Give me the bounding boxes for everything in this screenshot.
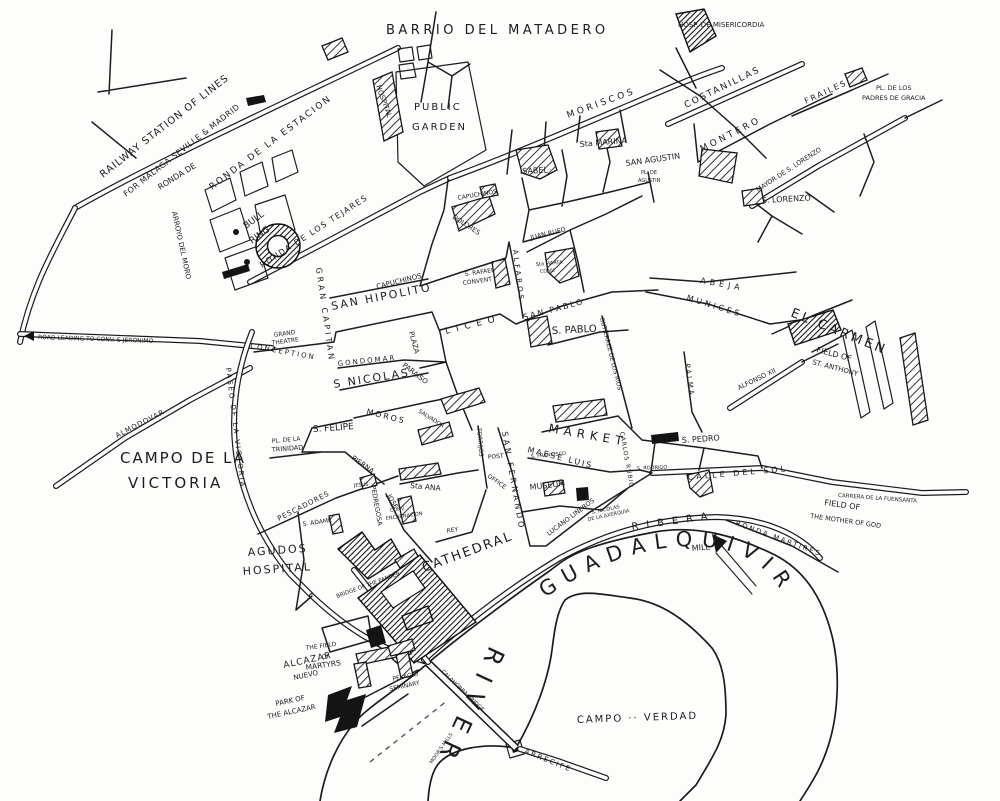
label-mother-2: THE MOTHER OF GOD (809, 512, 882, 530)
s-pedro-block (651, 432, 679, 444)
misericordia-block (676, 9, 716, 52)
label-trinidad-2: TRINIDAD (270, 443, 303, 454)
label-s-adame: S. ADAME (302, 517, 332, 528)
agudos-hospital-block (338, 532, 402, 579)
label-agudos-1: AGUDOS (247, 542, 308, 559)
label-post-1: POST (488, 453, 505, 461)
city-map: BARRIO DEL MATADERO RAILWAY STATION OF L… (0, 0, 1000, 801)
label-public-garden-2: GARDEN (412, 122, 467, 133)
label-rey: REY (446, 526, 459, 535)
label-market: MARKET (547, 421, 628, 449)
label-misericordia: HOSP. DE MISERICORDIA (678, 21, 764, 29)
label-palma: PALMA (683, 363, 696, 397)
label-liceo: LICEO (444, 313, 501, 336)
market-block (553, 399, 607, 422)
label-post-2: OFFICE (486, 473, 508, 491)
label-park-2: THE ALCAZAR (266, 703, 317, 721)
label-sta-ana: Sta ANA (410, 481, 442, 493)
label-cathedral: CATHEDRAL (420, 529, 515, 576)
label-munices: MUNICES (685, 293, 743, 319)
label-pl-agustin-2: AGUSTIN (638, 178, 661, 184)
label-campo-victoria-2: VICTORIA (128, 474, 223, 492)
label-san-agustin: SAN AGUSTIN (625, 151, 681, 168)
label-pl-agustin-1: PL. DE (641, 170, 657, 176)
label-alfaros: ALFAROS (511, 249, 525, 302)
label-almodovar: ALMODOVAR (114, 408, 166, 440)
label-montero: MONTERO (699, 115, 763, 154)
label-moros: MOROS (366, 407, 407, 425)
alcazar-nuevo-block (325, 686, 366, 733)
label-campo-victoria-1: CAMPO DE LA (120, 449, 246, 467)
san-agustin-block (699, 149, 737, 183)
label-s-pedro: S. PEDRO (682, 433, 721, 445)
label-isabel: ISABEL (520, 166, 549, 176)
label-public-garden-1: PUBLIC (414, 102, 462, 113)
label-padres-1: PL. DE LOS (876, 84, 911, 92)
label-barrio-matadero: BARRIO DEL MATADERO (386, 23, 609, 38)
anthony-strip-2 (866, 321, 893, 409)
label-guadalquivir: GUADALQUIVIR (535, 527, 801, 602)
label-s-pablo: S. PABLO (552, 324, 598, 337)
river-bank-inner-loop (516, 593, 726, 801)
label-san-fernando: SAN FERNANDO (500, 431, 526, 531)
label-anthony-2: ST. ANTHONY (811, 358, 859, 378)
label-gondomar: GONDOMAR (337, 354, 396, 368)
label-gutierrez: GUTIERREZ DE LOS RIOS (598, 317, 623, 391)
label-s-felipe: S. FELIPE (313, 422, 355, 435)
label-carlos-rubio: CARLOS RUBIO (618, 431, 635, 489)
s-pablo-block (527, 316, 552, 347)
label-s-nicolas: S NICOLAS (332, 366, 410, 391)
label-river: RIVER (429, 642, 510, 773)
label-s-lorenzo: S. LORENZO (762, 193, 811, 205)
label-pierna: PIERNA (350, 454, 376, 475)
map-page: BARRIO DEL MATADERO RAILWAY STATION OF L… (0, 0, 1000, 801)
label-juan-rufo: JUAN RUFO (529, 225, 567, 242)
label-torrijos: TORRIJOS (475, 427, 485, 457)
label-padres-2: PADRES DE GRACIA (862, 94, 926, 102)
label-arroyo-moro: ARROYO DEL MORO (170, 211, 192, 281)
label-gran-capitan: GRAN CAPITAN (314, 267, 336, 363)
label-martyrs-1: THE FIELD (304, 641, 337, 652)
label-plaza: PLAZA (407, 330, 421, 354)
label-campo-verdad: CAMPO ·· VERDAD (577, 711, 699, 726)
label-san-pablo-street: SAN PABLO (522, 297, 585, 322)
label-pedregosa: PEDREGOSA (369, 485, 384, 527)
